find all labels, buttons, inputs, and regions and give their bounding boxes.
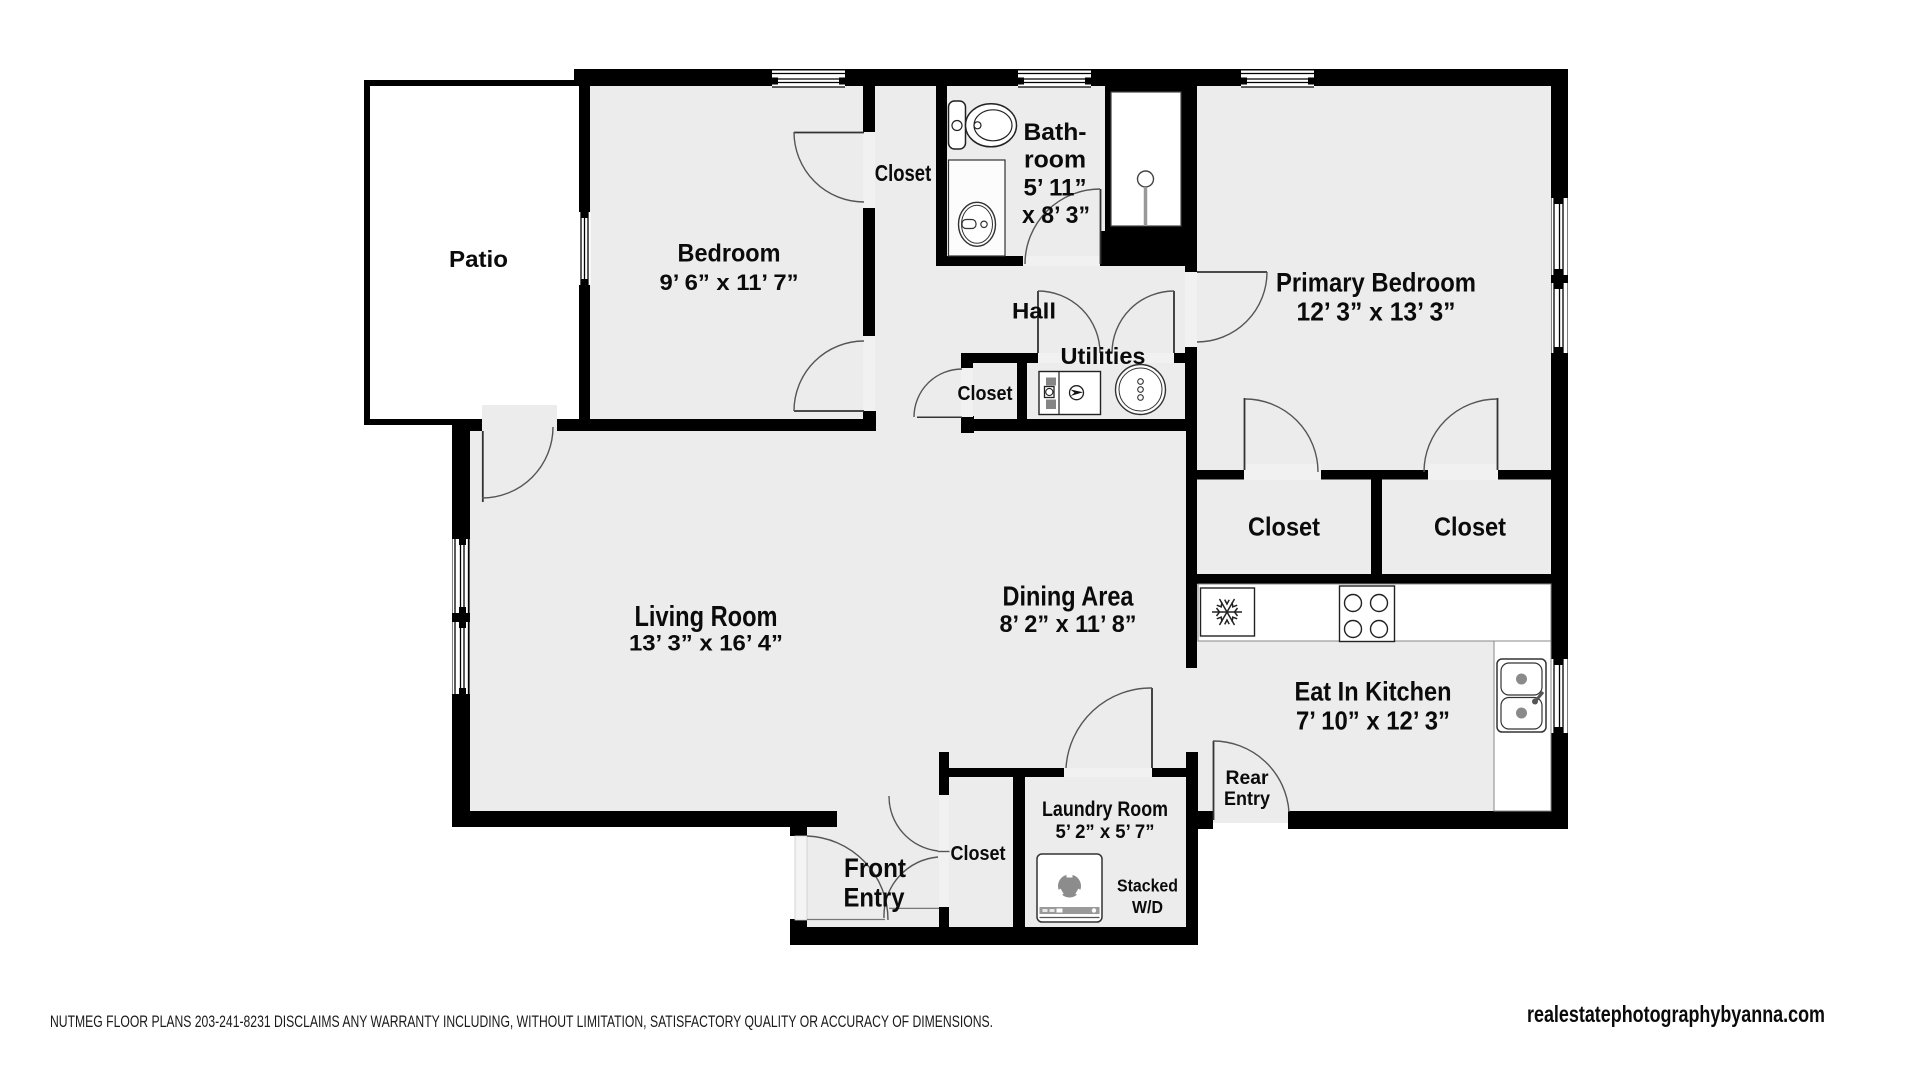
svg-text:Rear: Rear [1226,767,1269,789]
svg-text:realestatephotographybyanna.co: realestatephotographybyanna.com [1527,1001,1825,1027]
svg-text:x 8’ 3”: x 8’ 3” [1022,202,1090,229]
svg-text:Laundry Room: Laundry Room [1042,798,1168,821]
svg-text:Bedroom: Bedroom [678,240,781,268]
svg-text:Bath-: Bath- [1024,119,1087,146]
svg-text:NUTMEG FLOOR PLANS 203-241-823: NUTMEG FLOOR PLANS 203-241-8231 DISCLAIM… [50,1013,993,1031]
svg-text:Closet: Closet [958,383,1013,405]
svg-text:Closet: Closet [1248,512,1320,542]
svg-text:12’ 3” x 13’ 3”: 12’ 3” x 13’ 3” [1297,297,1456,327]
svg-text:Dining Area: Dining Area [1003,581,1135,612]
svg-text:5’ 2” x 5’ 7”: 5’ 2” x 5’ 7” [1056,822,1155,843]
svg-text:Primary Bedroom: Primary Bedroom [1276,267,1476,297]
svg-text:8’ 2” x 11’ 8”: 8’ 2” x 11’ 8” [1000,612,1137,638]
svg-text:Living Room: Living Room [635,601,778,633]
svg-text:9’ 6” x 11’ 7”: 9’ 6” x 11’ 7” [660,270,799,295]
svg-text:Closet: Closet [875,160,932,186]
svg-text:Closet: Closet [951,843,1006,865]
svg-text:Entry: Entry [1224,788,1270,810]
svg-text:Hall: Hall [1012,299,1056,324]
svg-text:7’ 10” x 12’ 3”: 7’ 10” x 12’ 3” [1296,707,1450,735]
svg-text:5’ 11”: 5’ 11” [1024,175,1087,202]
svg-text:W/D: W/D [1132,897,1163,917]
svg-text:Closet: Closet [1434,512,1506,542]
svg-text:Patio: Patio [449,246,508,272]
svg-text:Entry: Entry [844,883,905,913]
svg-text:Utilities: Utilities [1061,343,1146,369]
svg-text:13’ 3” x 16’ 4”: 13’ 3” x 16’ 4” [629,631,783,656]
svg-text:Front: Front [844,853,906,883]
svg-text:Stacked: Stacked [1117,876,1178,896]
svg-text:Eat In Kitchen: Eat In Kitchen [1295,677,1452,707]
svg-text:room: room [1024,147,1086,174]
